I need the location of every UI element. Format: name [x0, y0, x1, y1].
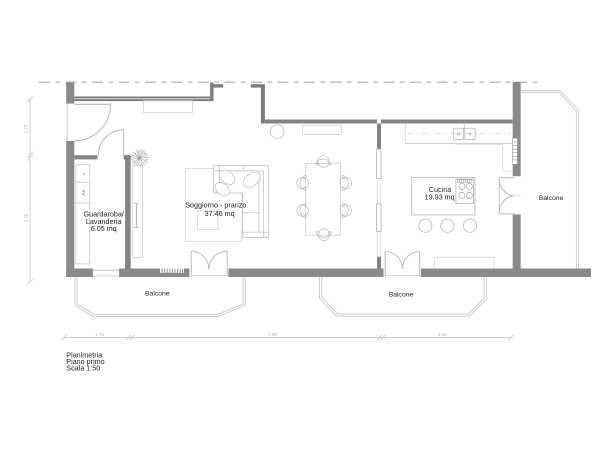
svg-text:1,75: 1,75 — [95, 332, 104, 337]
svg-text:1,78: 1,78 — [24, 124, 29, 133]
svg-text:6.05 mq: 6.05 mq — [91, 224, 117, 233]
svg-text:37.46 mq: 37.46 mq — [205, 209, 235, 218]
svg-text:Scala 1:50: Scala 1:50 — [66, 364, 100, 373]
svg-text:4,20: 4,20 — [438, 332, 447, 337]
svg-text:AS: AS — [81, 190, 86, 196]
svg-text:Balcone: Balcone — [145, 291, 170, 298]
svg-text:Balcone: Balcone — [389, 292, 414, 299]
svg-text:19.93 mq: 19.93 mq — [425, 193, 455, 202]
svg-text:7,98: 7,98 — [268, 332, 277, 337]
svg-text:3,38: 3,38 — [24, 213, 29, 222]
svg-text:L: L — [81, 172, 86, 175]
svg-text:Balcone: Balcone — [539, 195, 564, 202]
